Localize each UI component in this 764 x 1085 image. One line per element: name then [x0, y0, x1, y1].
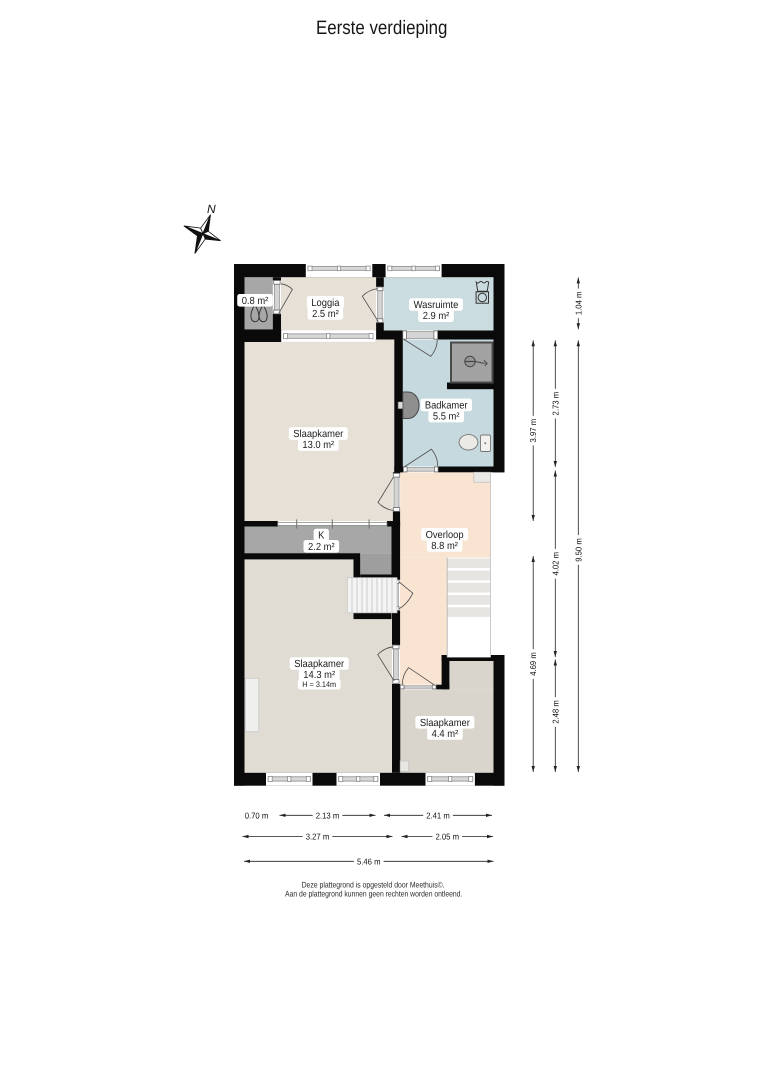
svg-text:Eerste verdieping: Eerste verdieping — [316, 17, 448, 39]
svg-text:Loggia: Loggia — [311, 298, 339, 309]
svg-text:N: N — [207, 202, 216, 216]
svg-text:8.8 m²: 8.8 m² — [431, 541, 458, 552]
svg-text:1.04 m: 1.04 m — [573, 292, 583, 316]
svg-text:2.05 m: 2.05 m — [435, 832, 459, 842]
svg-text:0.70 m: 0.70 m — [245, 810, 269, 820]
svg-text:Aan de plattegrond kunnen geen: Aan de plattegrond kunnen geen rechten w… — [285, 890, 462, 899]
svg-text:Badkamer: Badkamer — [425, 400, 468, 411]
svg-text:2.13 m: 2.13 m — [316, 810, 340, 820]
svg-text:0.8 m²: 0.8 m² — [242, 296, 269, 307]
svg-text:Slaapkamer: Slaapkamer — [420, 718, 471, 729]
svg-text:K: K — [318, 531, 324, 542]
svg-text:2.2 m²: 2.2 m² — [308, 542, 335, 553]
svg-text:2.9 m²: 2.9 m² — [423, 311, 450, 322]
svg-text:4.02 m: 4.02 m — [550, 552, 560, 576]
svg-text:Deze plattegrond is opgesteld: Deze plattegrond is opgesteld door Meeth… — [302, 881, 445, 890]
svg-text:3.27 m: 3.27 m — [306, 832, 330, 842]
svg-text:Slaapkamer: Slaapkamer — [294, 659, 345, 670]
svg-text:H = 3.14m: H = 3.14m — [302, 680, 336, 689]
svg-text:9.50 m: 9.50 m — [573, 538, 583, 562]
svg-text:2.5 m²: 2.5 m² — [312, 309, 339, 320]
svg-text:4.69 m: 4.69 m — [528, 652, 538, 676]
svg-text:5.46 m: 5.46 m — [357, 856, 381, 866]
svg-text:2.48 m: 2.48 m — [550, 700, 560, 724]
svg-text:2.41 m: 2.41 m — [426, 810, 450, 820]
svg-text:Overloop: Overloop — [426, 530, 464, 541]
svg-text:4.4 m²: 4.4 m² — [432, 729, 459, 740]
svg-text:Slaapkamer: Slaapkamer — [293, 429, 344, 440]
svg-text:13.0 m²: 13.0 m² — [302, 440, 334, 451]
svg-text:5.5 m²: 5.5 m² — [433, 412, 460, 423]
svg-text:3.97 m: 3.97 m — [528, 419, 538, 443]
svg-text:Wasruimte: Wasruimte — [414, 300, 459, 311]
svg-text:2.73 m: 2.73 m — [550, 392, 560, 416]
